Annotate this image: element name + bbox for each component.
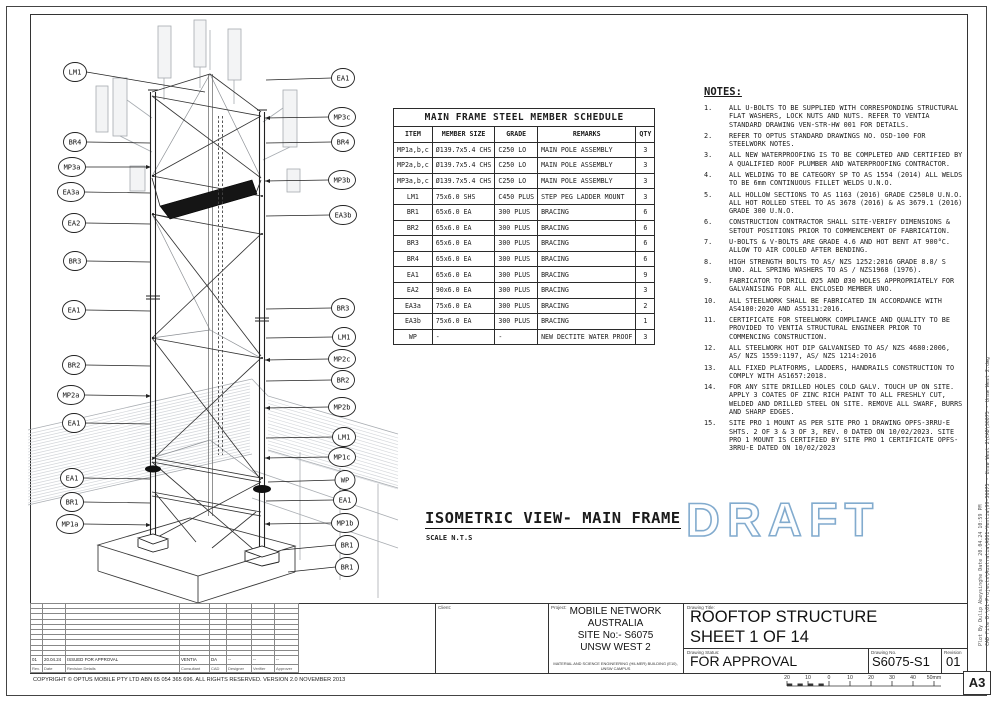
note-item: 6.CONSTRUCTION CONTRACTOR SHALL SITE-VER… [704,218,966,235]
schedule-cell-grade: 300 PLUS [495,251,538,267]
note-text: ALL FIXED PLATFORMS, LADDERS, HANDRAILS … [729,364,966,381]
titleblock-divider [683,648,967,649]
schedule-cell-grade: 300 PLUS [495,204,538,220]
schedule-cell-remarks: BRACING [538,314,636,330]
revision-header: Verifier [252,664,275,672]
note-item: 13.ALL FIXED PLATFORMS, LADDERS, HANDRAI… [704,364,966,381]
schedule-cell-size: 90x6.0 EA [432,282,495,298]
schedule-cell-qty: 9 [636,267,655,283]
revision-header-row: Rev.DateRevision DetailsConsultantCADDes… [31,664,299,672]
schedule-cell-item: EA2 [394,282,433,298]
schedule-row: BR265x6.0 EA300 PLUSBRACING6 [394,220,655,236]
schedule-cell-size: Ø139.7x5.4 CHS [432,158,495,174]
note-text: CONSTRUCTION CONTRACTOR SHALL SITE-VERIF… [729,218,966,235]
revision-header: CAD [210,664,227,672]
schedule-header: MEMBER SIZE [432,127,495,143]
titleblock-divider [868,648,869,673]
schedule-row: LM175x6.0 SHSC450 PLUSSTEP PEG LADDER MO… [394,189,655,205]
drawing-status: FOR APPROVAL [690,653,797,669]
revision-details: ISSUED FOR APPROVAL [66,655,180,664]
schedule-row: BR165x6.0 EA300 PLUSBRACING6 [394,204,655,220]
schedule-header: REMARKS [538,127,636,143]
schedule-cell-size: 75x6.0 EA [432,298,495,314]
note-text: FABRICATOR TO DRILL Ø25 AND Ø30 HOLES AP… [729,277,966,294]
scale-bar-label: 30 [889,675,895,681]
revision-header: Approver [275,664,299,672]
note-number: 8. [704,258,718,275]
revision-rev: 01 [31,655,43,664]
schedule-cell-remarks: BRACING [538,204,636,220]
note-number: 15. [704,419,718,452]
project-line: MOBILE NETWORK [548,606,683,618]
schedule-cell-size: 65x6.0 EA [432,236,495,252]
revision-consultant: VENTIA [180,655,210,664]
note-item: 8.HIGH STRENGTH BOLTS TO AS/ NZS 1252:20… [704,258,966,275]
note-number: 12. [704,344,718,361]
schedule-cell-size: Ø139.7x5.4 CHS [432,173,495,189]
schedule-cell-remarks: MAIN POLE ASSEMBLY [538,142,636,158]
view-title: ISOMETRIC VIEW- MAIN FRAME [425,509,681,529]
drawing-sheet: LM1BR4MP3aEA3aEA2BR3EA1BR2MP2aEA1EA1BR1M… [0,0,992,701]
note-item: 7.U-BOLTS & V-BOLTS ARE GRADE 4.6 AND HO… [704,238,966,255]
draft-watermark: DRAFT [686,492,880,547]
note-number: 10. [704,297,718,314]
schedule-row: EA290x6.0 EA300 PLUSBRACING3 [394,282,655,298]
plot-by-note: Plot By Dulip Abeysinghe Date 20.04.24 1… [978,226,984,646]
schedule-cell-remarks: BRACING [538,298,636,314]
schedule-row: BR365x6.0 EA300 PLUSBRACING6 [394,236,655,252]
schedule-cell-remarks: NEW DECTITE WATER PROOF [538,329,636,345]
revision-header: Consultant [180,664,210,672]
note-number: 9. [704,277,718,294]
note-text: ALL WELDING TO BE CATEGORY SP TO AS 1554… [729,171,966,188]
notes-list: 1.ALL U-BOLTS TO BE SUPPLIED WITH CORRES… [704,104,966,452]
schedule-row: BR465x6.0 EA300 PLUSBRACING6 [394,251,655,267]
note-number: 1. [704,104,718,129]
project-line: SITE No:- S6075 [548,630,683,642]
note-number: 11. [704,316,718,341]
schedule-cell-qty: 3 [636,329,655,345]
note-number: 4. [704,171,718,188]
schedule-cell-item: WP [394,329,433,345]
revision-approver: -- [275,655,299,664]
schedule-cell-remarks: STEP PEG LADDER MOUNT [538,189,636,205]
note-item: 12.ALL STEELWORK HOT DIP GALVANISED TO A… [704,344,966,361]
revision-value: 01 [946,654,960,669]
note-number: 3. [704,151,718,168]
schedule-cell-item: BR1 [394,204,433,220]
schedule-header: QTY [636,127,655,143]
project-line: AUSTRALIA [548,618,683,630]
revision-cad: DA [210,655,227,664]
scale-bar-label: 40 [910,675,916,681]
schedule-cell-item: MP3a,b,c [394,173,433,189]
scale-bar: 201001020304050mm [783,673,968,691]
schedule-row: WP--NEW DECTITE WATER PROOF3 [394,329,655,345]
schedule-cell-qty: 1 [636,314,655,330]
note-item: 3.ALL NEW WATERPROOFING IS TO BE COMPLET… [704,151,966,168]
revision-verifier: -- [252,655,275,664]
revision-history-table: 0120.04.24ISSUED FOR APPROVALVENTIADA---… [30,603,299,673]
note-item: 9.FABRICATOR TO DRILL Ø25 AND Ø30 HOLES … [704,277,966,294]
scale-bar-label: 20 [784,675,790,681]
schedule-cell-size: 65x6.0 EA [432,204,495,220]
scale-bar-label: 10 [805,675,811,681]
schedule-cell-qty: 3 [636,158,655,174]
drawing-number: S6075-S1 [872,654,930,669]
schedule-cell-item: BR4 [394,251,433,267]
drawing-title-line: ROOFTOP STRUCTURE [690,608,877,628]
steel-member-schedule-table: MAIN FRAME STEEL MEMBER SCHEDULEITEMMEMB… [393,108,655,345]
schedule-cell-item: BR3 [394,236,433,252]
revision-date: 20.04.24 [43,655,66,664]
schedule-row: MP3a,b,cØ139.7x5.4 CHSC250 LOMAIN POLE A… [394,173,655,189]
schedule-cell-grade: 300 PLUS [495,267,538,283]
schedule-cell-item: EA3b [394,314,433,330]
note-text: ALL STEELWORK SHALL BE FABRICATED IN ACC… [729,297,966,314]
copyright-line: COPYRIGHT © OPTUS MOBILE PTY LTD ABN 65 … [33,677,345,683]
schedule-cell-remarks: BRACING [538,251,636,267]
note-text: REFER TO OPTUS STANDARD DRAWINGS NO. OSD… [729,132,966,149]
schedule-row: MP1a,b,cØ139.7x5.4 CHSC250 LOMAIN POLE A… [394,142,655,158]
note-text: ALL NEW WATERPROOFING IS TO BE COMPLETED… [729,151,966,168]
revision-header: Designer [227,664,252,672]
schedule-row: EA3a75x6.0 EA300 PLUSBRACING2 [394,298,655,314]
note-text: ALL U-BOLTS TO BE SUPPLIED WITH CORRESPO… [729,104,966,129]
schedule-cell-size: 65x6.0 EA [432,220,495,236]
note-number: 5. [704,191,718,216]
schedule-cell-size: 75x6.0 EA [432,314,495,330]
note-text: ALL STEELWORK HOT DIP GALVANISED TO AS/ … [729,344,966,361]
schedule-cell-qty: 6 [636,204,655,220]
project-name: MOBILE NETWORK AUSTRALIA SITE No:- S6075… [548,606,683,654]
note-item: 15.SITE PRO 1 MOUNT AS PER SITE PRO 1 DR… [704,419,966,452]
cad-file-note: CAD File D:\01-Projects\Australia\A001-V… [985,226,991,646]
schedule-cell-grade: 300 PLUS [495,298,538,314]
note-item: 14.FOR ANY SITE DRILLED HOLES COLD GALV.… [704,383,966,416]
note-number: 6. [704,218,718,235]
project-address: MATERIAL AND SCIENCE ENGINEERING (HILMER… [549,661,682,671]
schedule-cell-remarks: MAIN POLE ASSEMBLY [538,158,636,174]
note-number: 7. [704,238,718,255]
revision-data-row: 0120.04.24ISSUED FOR APPROVALVENTIADA---… [31,655,299,664]
note-text: FOR ANY SITE DRILLED HOLES COLD GALV. TO… [729,383,966,416]
scale-bar-label: 50mm [927,675,941,681]
schedule-cell-qty: 3 [636,142,655,158]
note-item: 10.ALL STEELWORK SHALL BE FABRICATED IN … [704,297,966,314]
schedule-cell-item: MP1a,b,c [394,142,433,158]
schedule-header: GRADE [495,127,538,143]
note-item: 2.REFER TO OPTUS STANDARD DRAWINGS NO. O… [704,132,966,149]
schedule-cell-remarks: BRACING [538,282,636,298]
note-text: ALL HOLLOW SECTIONS TO AS 1163 (2016) GR… [729,191,966,216]
schedule-row: MP2a,b,cØ139.7x5.4 CHSC250 LOMAIN POLE A… [394,158,655,174]
schedule-cell-grade: 300 PLUS [495,236,538,252]
note-item: 5.ALL HOLLOW SECTIONS TO AS 1163 (2016) … [704,191,966,216]
revision-header: Rev. [31,664,43,672]
schedule-cell-remarks: BRACING [538,236,636,252]
schedule-cell-item: EA3a [394,298,433,314]
note-text: SITE PRO 1 MOUNT AS PER SITE PRO 1 DRAWI… [729,419,966,452]
note-text: HIGH STRENGTH BOLTS TO AS/ NZS 1252:2016… [729,258,966,275]
notes-section: NOTES: 1.ALL U-BOLTS TO BE SUPPLIED WITH… [704,86,966,455]
revision-designer: -- [227,655,252,664]
schedule-cell-qty: 6 [636,220,655,236]
notes-title: NOTES: [704,86,966,98]
schedule-cell-remarks: MAIN POLE ASSEMBLY [538,173,636,189]
schedule-cell-item: BR2 [394,220,433,236]
schedule-cell-qty: 6 [636,251,655,267]
scale-bar-label: 20 [868,675,874,681]
scale-bar-label: 10 [847,675,853,681]
schedule-cell-size: - [432,329,495,345]
schedule-cell-item: LM1 [394,189,433,205]
schedule-cell-qty: 2 [636,298,655,314]
schedule-cell-grade: C450 PLUS [495,189,538,205]
schedule-cell-grade: - [495,329,538,345]
schedule-cell-grade: 300 PLUS [495,220,538,236]
paper-size-badge: A3 [963,671,991,695]
schedule-row: EA165x6.0 EA300 PLUSBRACING9 [394,267,655,283]
titleblock-divider [941,648,942,673]
revision-header: Date [43,664,66,672]
schedule-header: ITEM [394,127,433,143]
schedule-cell-qty: 3 [636,189,655,205]
schedule-cell-qty: 3 [636,282,655,298]
schedule-title: MAIN FRAME STEEL MEMBER SCHEDULE [394,109,655,127]
schedule-cell-size: 75x6.0 SHS [432,189,495,205]
schedule-cell-size: 65x6.0 EA [432,251,495,267]
titleblock-divider [683,603,684,673]
schedule-cell-qty: 6 [636,236,655,252]
schedule-row: EA3b75x6.0 EA300 PLUSBRACING1 [394,314,655,330]
revision-header: Revision Details [66,664,180,672]
titleblock-divider [435,603,436,673]
project-line: UNSW WEST 2 [548,642,683,654]
note-item: 4.ALL WELDING TO BE CATEGORY SP TO AS 15… [704,171,966,188]
note-number: 2. [704,132,718,149]
schedule-cell-grade: 300 PLUS [495,282,538,298]
schedule-cell-qty: 3 [636,173,655,189]
note-item: 11.CERTIFICATE FOR STEELWORK COMPLIANCE … [704,316,966,341]
note-text: CERTIFICATE FOR STEELWORK COMPLIANCE AND… [729,316,966,341]
schedule-cell-grade: C250 LO [495,173,538,189]
drawing-title-line: SHEET 1 OF 14 [690,628,877,648]
schedule-cell-grade: C250 LO [495,158,538,174]
view-scale: SCALE N.T.S [426,534,472,542]
schedule-cell-size: 65x6.0 EA [432,267,495,283]
schedule-cell-grade: 300 PLUS [495,314,538,330]
schedule-cell-remarks: BRACING [538,220,636,236]
scale-bar-label: 0 [828,675,831,681]
note-number: 14. [704,383,718,416]
note-item: 1.ALL U-BOLTS TO BE SUPPLIED WITH CORRES… [704,104,966,129]
schedule-cell-grade: C250 LO [495,142,538,158]
client-label: Client: [438,605,451,610]
schedule-cell-item: EA1 [394,267,433,283]
schedule-cell-item: MP2a,b,c [394,158,433,174]
note-text: U-BOLTS & V-BOLTS ARE GRADE 4.6 AND HOT … [729,238,966,255]
schedule-cell-size: Ø139.7x5.4 CHS [432,142,495,158]
drawing-title: ROOFTOP STRUCTURE SHEET 1 OF 14 [690,608,877,647]
note-number: 13. [704,364,718,381]
schedule-cell-remarks: BRACING [538,267,636,283]
